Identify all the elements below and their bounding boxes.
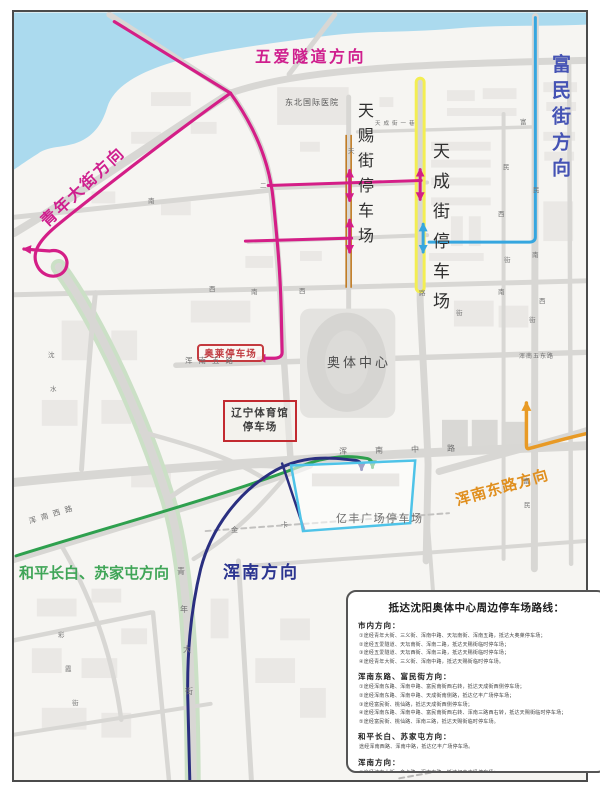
- hospital-label: 东北国际医院: [285, 99, 339, 107]
- road-char: 富: [520, 119, 527, 126]
- legend-route-line: ②途经浑南东路、浑南中路、天成街南侧路，抵达亿丰广场停车场；: [359, 692, 600, 701]
- road-label-hunnan-wulu: 浑南五路: [185, 357, 239, 365]
- road-char: 彩: [58, 632, 65, 639]
- hunnan-direction-label: 浑南方向: [223, 565, 299, 582]
- tianci-street-parking-label: 天赐街停车场: [356, 102, 372, 252]
- legend-route-line: ①途经沈本大街、金卡路、浑南中路，抵达亿丰广场停车场；: [359, 769, 600, 773]
- legend-route-line: ③途经五爱隧道、天坛西街、浑南三路，抵达天赐街临时停车场；: [359, 649, 600, 658]
- legend-section-header: 浑南东路、富民街方向：: [358, 671, 600, 682]
- map-frame: 奥莱停车场 辽宁体育馆 停车场 亿丰广场停车场 五爱隧道方向富民街方向青年大街方…: [12, 10, 588, 782]
- liaoning-gym-parking-label-line2: 停车场: [243, 421, 278, 435]
- legend-section-header: 浑南方向：: [358, 757, 600, 768]
- legend-route-line: ⑤途经富民街、桃仙路、浑南三路，抵达天赐街临时停车场。: [359, 718, 600, 727]
- road-char: 南: [251, 289, 258, 296]
- legend-sections: 市内方向：①途经青年大街、三义街、浑南中路、天坛南街、浑南五路，抵达大奥莱停车场…: [348, 620, 600, 773]
- fumin-street-direction-label: 富民街方向: [550, 54, 569, 184]
- legend-route-line: ①途经浑南东路、浑南中路、富民南街西右转，抵达天成街西侧停车场；: [359, 683, 600, 692]
- road-char: 民: [533, 187, 540, 194]
- road-char: 青: [177, 568, 185, 576]
- road-char: 路: [419, 290, 426, 297]
- legend-panel: 抵达沈阳奥体中心周边停车场路线： 市内方向：①途经青年大街、三义街、浑南中路、天…: [346, 590, 600, 773]
- legend-route-line: 途经浑南西路、浑南中路，抵达亿丰广场停车场。: [359, 743, 600, 752]
- road-char: 西: [539, 298, 546, 305]
- road-char: 街: [529, 317, 536, 324]
- legend-section-header: 市内方向：: [358, 620, 600, 631]
- road-char: 水: [50, 386, 57, 393]
- road-char: 南: [148, 198, 155, 205]
- legend-route-line: ②途经五爱隧道、天坛南街、浑南二路，抵达天赐街临时停车场；: [359, 641, 600, 650]
- map-infographic: 奥莱停车场 辽宁体育馆 停车场 亿丰广场停车场 五爱隧道方向富民街方向青年大街方…: [0, 0, 600, 797]
- road-char: 街: [185, 688, 193, 696]
- olympic-center-label: 奥体中心: [327, 357, 391, 370]
- yifeng-parking-label: 亿丰广场停车场: [336, 510, 424, 526]
- legend-route-line: ④途经青年大街、三义街、浑南中路，抵达天赐街临时停车场。: [359, 658, 600, 667]
- legend-route-line: ④途经浑南东路、浑南中路、富民南街西右转、浑南三路西右转，抵达天赐街临时停车场；: [359, 709, 600, 718]
- road-char: 西: [498, 211, 505, 218]
- legend-route-line: ③途经富民街、桃仙路，抵达天成街西侧停车场；: [359, 701, 600, 710]
- road-label-hunnan-wudonglu: 浑南五东路: [519, 354, 554, 360]
- road-char: 民: [524, 502, 531, 509]
- road-char: 天: [348, 148, 355, 155]
- road-char: 沈: [48, 352, 55, 359]
- legend-title: 抵达沈阳奥体中心周边停车场路线：: [348, 600, 600, 615]
- road-char: 富: [523, 478, 530, 485]
- tiancheng-street-parking-label: 天成街停车场: [430, 142, 447, 322]
- road-char: 街: [504, 257, 511, 264]
- road-char: 卡: [281, 522, 288, 529]
- road-char: 年: [180, 606, 188, 614]
- wuai-tunnel-direction-label: 五爱隧道方向: [255, 49, 366, 65]
- road-char: 霞: [65, 666, 72, 673]
- road-char: 西: [299, 288, 306, 295]
- road-char: 金: [231, 527, 238, 534]
- legend-route-line: ①途经青年大街、三义街、浑南中路、天坛南街、浑南五路，抵达大奥莱停车场；: [359, 632, 600, 641]
- road-char: 大: [183, 646, 191, 654]
- legend-section-header: 和平长白、苏家屯方向：: [358, 731, 600, 742]
- liaoning-gym-parking-box: 辽宁体育馆 停车场: [223, 400, 297, 442]
- road-char: 街: [456, 310, 463, 317]
- road-label-tiancheng-yixiang: 天成街一巷: [375, 122, 418, 128]
- road-char: 二: [260, 183, 267, 190]
- liaoning-gym-parking-label-line1: 辽宁体育馆: [231, 407, 289, 421]
- road-char: 南: [498, 289, 505, 296]
- road-char: 南: [532, 252, 539, 259]
- road-char: 街: [72, 700, 79, 707]
- road-char: 民: [503, 164, 510, 171]
- road-char: 西: [209, 286, 216, 293]
- heping-changbai-sujiatun-direction-label: 和平长白、苏家屯方向: [19, 566, 169, 581]
